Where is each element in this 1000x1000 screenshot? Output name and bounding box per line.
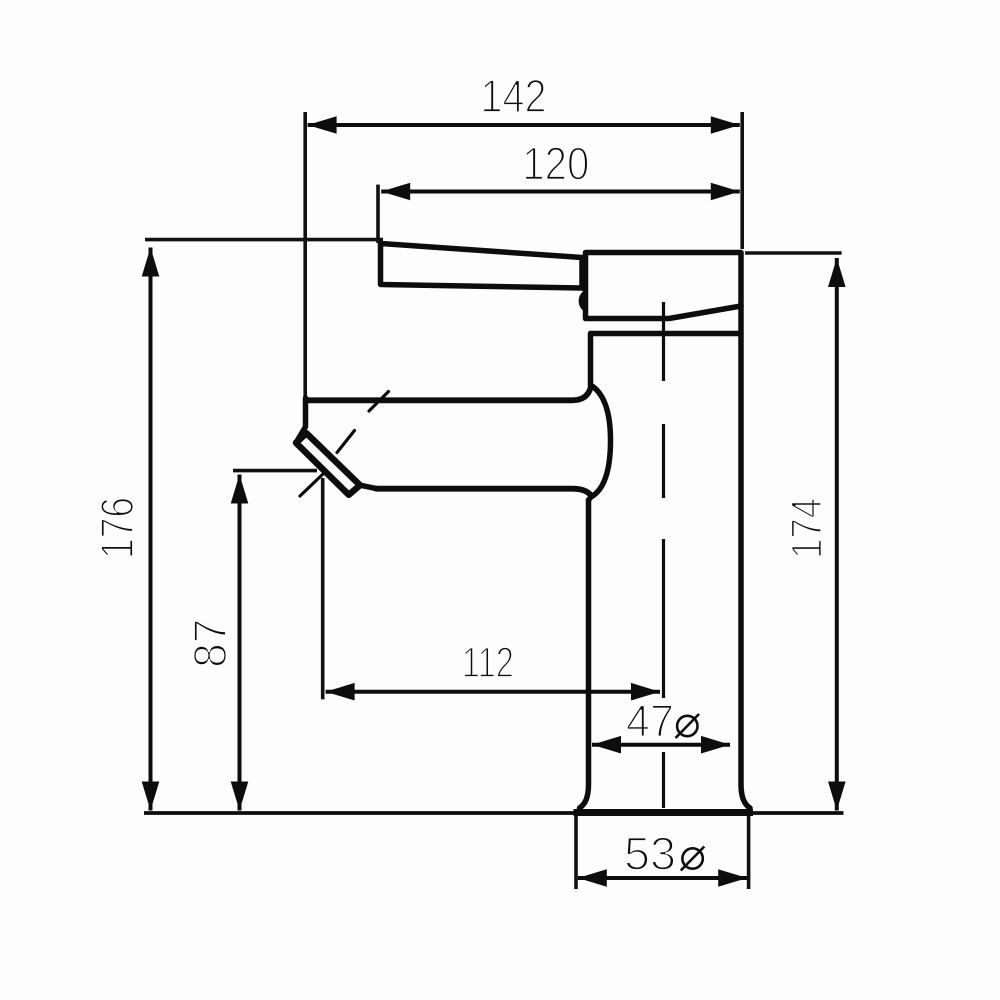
svg-text:174: 174 xyxy=(782,498,831,559)
svg-text:47: 47 xyxy=(626,696,674,747)
svg-text:53: 53 xyxy=(624,828,676,880)
svg-text:112: 112 xyxy=(462,639,514,687)
svg-text:142: 142 xyxy=(481,70,547,122)
svg-text:120: 120 xyxy=(522,138,589,190)
svg-text:176: 176 xyxy=(91,497,143,559)
svg-text:87: 87 xyxy=(184,619,236,668)
